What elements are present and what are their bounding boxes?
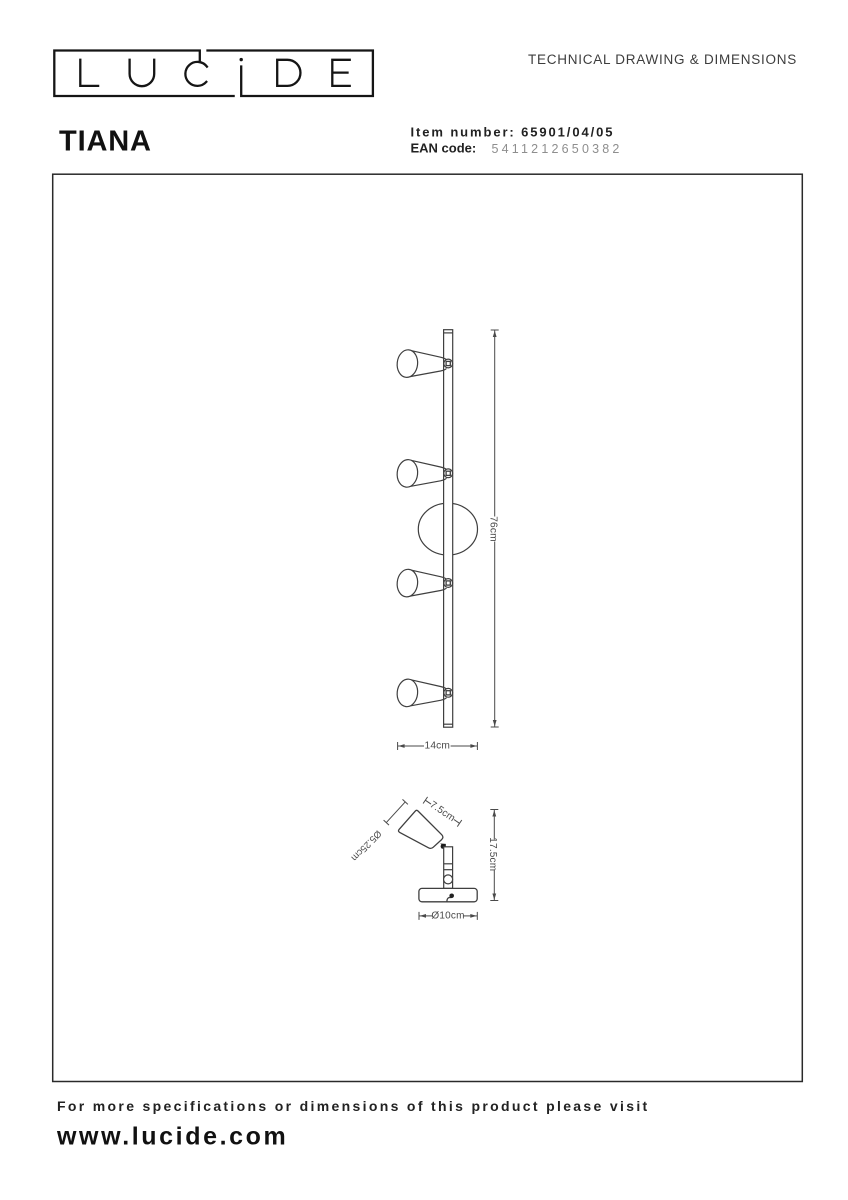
svg-text:EAN code:: EAN code: — [411, 141, 477, 156]
svg-text:Ø5.25cm: Ø5.25cm — [349, 828, 384, 863]
svg-text:Item number: 65901/04/05: Item number: 65901/04/05 — [411, 125, 615, 140]
svg-text:7.5cm: 7.5cm — [428, 799, 458, 824]
svg-text:For more specifications or dim: For more specifications or dimensions of… — [57, 1098, 650, 1114]
svg-text:76cm: 76cm — [488, 516, 499, 542]
svg-text:www.lucide.com: www.lucide.com — [56, 1123, 288, 1151]
svg-text:TIANA: TIANA — [59, 125, 152, 157]
svg-text:5411212650382: 5411212650382 — [492, 142, 623, 156]
svg-text:14cm: 14cm — [425, 741, 451, 752]
svg-text:Ø10cm: Ø10cm — [431, 911, 464, 922]
svg-text:17.5cm: 17.5cm — [487, 837, 498, 871]
svg-text:TECHNICAL DRAWING & DIMENSIONS: TECHNICAL DRAWING & DIMENSIONS — [528, 52, 797, 67]
